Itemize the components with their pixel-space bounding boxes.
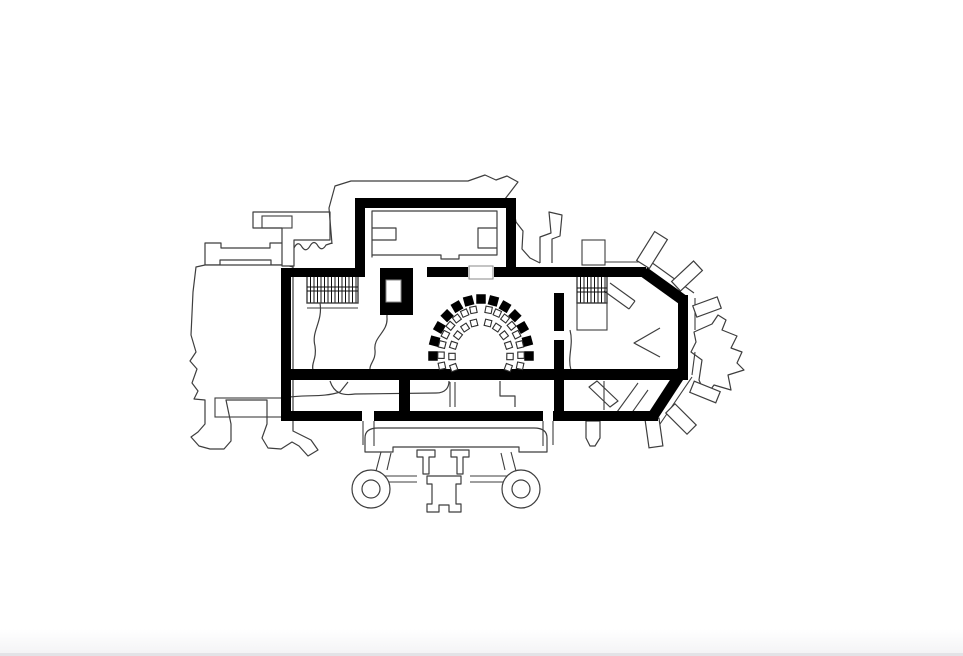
walls-layer [281,198,688,421]
floor-plan-canvas [0,0,963,656]
seating-layer [428,294,534,371]
floor-plan-svg [0,0,963,656]
outline-layer [190,175,744,512]
